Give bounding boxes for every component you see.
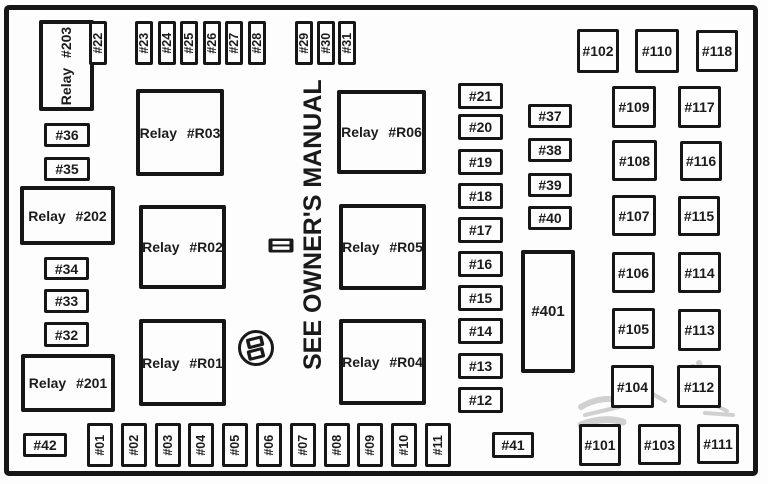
box-label: #07 — [297, 435, 310, 456]
fuse-102: #102 — [577, 29, 619, 73]
box-label: #33 — [55, 293, 78, 309]
fuse-03: #03 — [155, 423, 181, 467]
fuse-113: #113 — [678, 309, 721, 351]
box-label: #21 — [469, 88, 492, 104]
fuse-12: #12 — [458, 387, 503, 413]
box-label: #03 — [162, 435, 175, 456]
box-label: #37 — [538, 108, 561, 124]
fuse-25: #25 — [180, 21, 198, 65]
box-label: #11 — [432, 435, 445, 455]
fuse-39: #39 — [528, 173, 572, 197]
box-label: #28 — [251, 33, 264, 54]
box-label: #114 — [684, 265, 714, 281]
box-label: #18 — [469, 188, 492, 204]
fuse-41: #41 — [492, 432, 534, 458]
fuse-114: #114 — [678, 252, 721, 293]
box-label: #101 — [584, 437, 615, 453]
box-label: #36 — [55, 127, 78, 143]
box-label: #12 — [469, 392, 492, 408]
fuse-13: #13 — [458, 353, 503, 379]
box-label: #34 — [55, 261, 78, 277]
box-label: Relay #R05 — [342, 239, 423, 255]
box-label: #20 — [469, 119, 492, 135]
fuse-401: #401 — [521, 250, 575, 373]
box-label: #17 — [469, 222, 492, 238]
box-label: #42 — [33, 437, 56, 453]
fuse-26: #26 — [203, 21, 221, 65]
box-label: #35 — [55, 161, 78, 177]
fuse-36: #36 — [44, 123, 90, 147]
relay-rr06: Relay #R06 — [337, 90, 426, 174]
box-label: #08 — [331, 435, 344, 456]
fuse-20: #20 — [458, 114, 503, 140]
fuse-16: #16 — [458, 251, 503, 277]
fuse-116: #116 — [680, 141, 722, 181]
fuse-27: #27 — [225, 21, 243, 65]
box-label: #26 — [206, 33, 219, 54]
relay-rr01: Relay #R01 — [139, 319, 226, 406]
fuse-106: #106 — [612, 252, 655, 293]
box-label: #38 — [538, 142, 561, 158]
fuse-31: #31 — [338, 21, 356, 65]
fuse-109: #109 — [612, 86, 656, 128]
box-label: #109 — [618, 99, 649, 115]
fuse-35: #35 — [44, 157, 90, 181]
box-label: #27 — [228, 33, 241, 54]
fuse-111: #111 — [697, 424, 739, 464]
relay-r201: Relay #201 — [21, 354, 115, 412]
fuse-18: #18 — [458, 183, 503, 209]
fuse-09: #09 — [357, 423, 383, 467]
fuse-32: #32 — [44, 322, 89, 347]
box-label: #29 — [298, 33, 311, 54]
box-label: #05 — [229, 435, 242, 456]
box-label: #104 — [617, 379, 648, 395]
fuse-30: #30 — [317, 21, 335, 65]
box-label: #116 — [686, 153, 716, 169]
relay-rr02: Relay #R02 — [139, 205, 226, 289]
fuse-101: #101 — [579, 424, 621, 466]
fuse-15: #15 — [458, 285, 503, 311]
see-owners-manual-text: SEE OWNER'S MANUAL — [298, 110, 328, 370]
fuse-08: #08 — [324, 423, 350, 467]
fuse-24: #24 — [158, 21, 176, 65]
relay-rr05: Relay #R05 — [339, 204, 426, 290]
box-label: Relay #R01 — [142, 355, 223, 371]
box-label: #103 — [644, 437, 675, 453]
box-label: #19 — [469, 154, 492, 170]
fuse-112: #112 — [677, 365, 721, 408]
fuse-22: #22 — [89, 21, 107, 65]
box-label: #111 — [703, 436, 733, 452]
box-label: Relay #201 — [29, 375, 107, 391]
fuse-04: #04 — [188, 423, 214, 467]
box-label: #24 — [161, 33, 174, 54]
box-label: #32 — [55, 327, 78, 343]
fuse-box-diagram: SEE OWNER'S MANUAL Relay #203#36#35Relay… — [0, 0, 768, 484]
fuse-33: #33 — [44, 289, 89, 313]
fuse-19: #19 — [458, 149, 503, 175]
relay-r203: Relay #203 — [39, 20, 94, 111]
box-label: Relay #203 — [59, 26, 75, 104]
box-label: #40 — [538, 210, 561, 226]
fuse-38: #38 — [528, 138, 572, 162]
box-label: #102 — [582, 43, 613, 59]
fuse-28: #28 — [248, 21, 266, 65]
box-label: #04 — [195, 435, 208, 456]
box-label: Relay #R04 — [342, 354, 423, 370]
box-label: #31 — [341, 33, 354, 54]
box-label: #401 — [531, 303, 564, 320]
box-label: Relay #R06 — [341, 124, 422, 140]
fuse-06: #06 — [256, 423, 282, 467]
fuse-37: #37 — [528, 104, 572, 128]
fuse-07: #07 — [290, 423, 316, 467]
fuse-110: #110 — [635, 29, 679, 73]
fuse-23: #23 — [135, 21, 153, 65]
fuse-29: #29 — [295, 21, 313, 65]
box-label: #112 — [684, 379, 714, 395]
fuse-40: #40 — [528, 206, 572, 230]
box-label: #13 — [469, 358, 492, 374]
fuse-01: #01 — [87, 423, 113, 467]
box-label: #118 — [702, 43, 732, 59]
fuse-21: #21 — [458, 83, 503, 109]
fuse-107: #107 — [612, 195, 656, 236]
box-label: #22 — [92, 33, 105, 54]
box-label: #107 — [618, 208, 649, 224]
fuse-118: #118 — [696, 30, 738, 72]
box-label: #10 — [398, 435, 411, 456]
box-label: #106 — [618, 265, 649, 281]
fuse-14: #14 — [458, 318, 503, 344]
fuse-11: #11 — [425, 423, 451, 467]
box-label: #02 — [128, 435, 141, 456]
relay-rr04: Relay #R04 — [339, 319, 426, 405]
box-label: Relay #202 — [28, 208, 106, 224]
fuse-104: #104 — [611, 365, 654, 408]
box-label: #14 — [469, 323, 492, 339]
fuse-connector-icon — [268, 238, 294, 253]
box-label: #105 — [618, 321, 649, 337]
box-label: #30 — [320, 33, 333, 54]
box-label: #113 — [684, 322, 714, 338]
fuse-105: #105 — [612, 308, 655, 349]
fuse-02: #02 — [121, 423, 147, 467]
fuse-108: #108 — [612, 140, 657, 181]
box-label: Relay #R02 — [142, 239, 223, 255]
relay-r202: Relay #202 — [20, 186, 115, 245]
box-label: #110 — [642, 43, 672, 59]
fuse-17: #17 — [458, 217, 503, 243]
fuse-115: #115 — [678, 196, 720, 236]
box-label: #117 — [684, 99, 714, 115]
box-label: Relay #R03 — [140, 125, 221, 141]
fuse-42: #42 — [23, 433, 67, 457]
box-label: #23 — [138, 33, 151, 54]
box-label: #06 — [263, 435, 276, 456]
box-label: #01 — [94, 435, 107, 456]
box-label: #39 — [538, 177, 561, 193]
fuse-103: #103 — [638, 424, 681, 465]
fuse-05: #05 — [222, 423, 248, 467]
box-label: #15 — [469, 290, 492, 306]
box-label: #108 — [619, 153, 650, 169]
fuse-puller-icon — [237, 328, 275, 368]
fuse-117: #117 — [678, 86, 721, 128]
box-label: #25 — [183, 33, 196, 54]
box-label: #115 — [684, 208, 714, 224]
fuse-10: #10 — [391, 423, 417, 467]
fuse-34: #34 — [44, 257, 89, 280]
box-label: #41 — [501, 437, 524, 453]
box-label: #09 — [364, 435, 377, 456]
box-label: #16 — [469, 256, 492, 272]
relay-rr03: Relay #R03 — [136, 89, 224, 176]
